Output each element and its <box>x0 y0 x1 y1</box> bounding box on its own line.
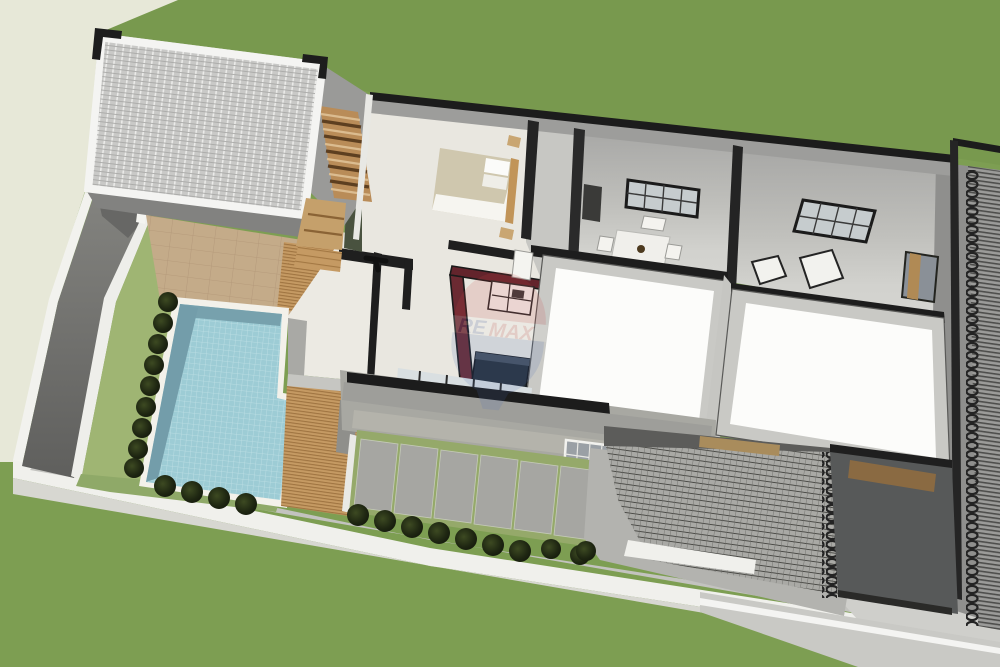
svg-text:RE: RE <box>457 315 488 340</box>
